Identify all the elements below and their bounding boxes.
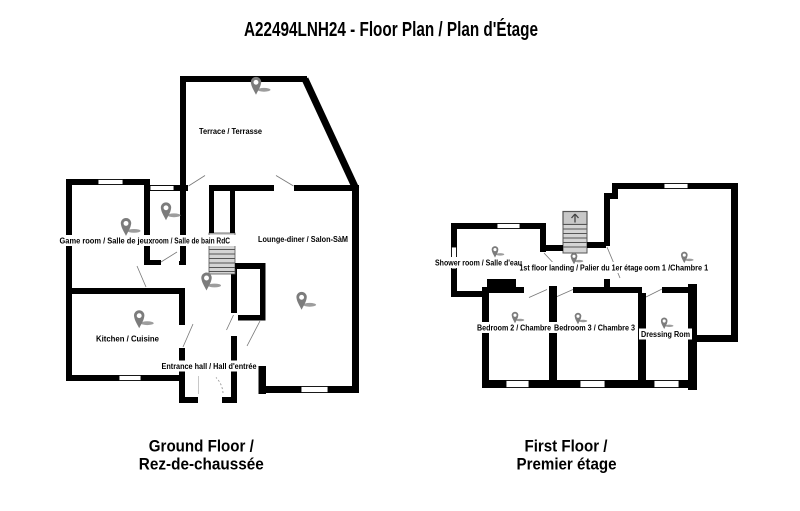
- svg-text:Ground Floor /: Ground Floor /: [149, 436, 254, 455]
- svg-text:room / Salle de bain RdC: room / Salle de bain RdC: [152, 237, 230, 246]
- svg-text:Terrace / Terrasse: Terrace / Terrasse: [199, 127, 263, 136]
- svg-text:1st floor landing / Palier du: 1st floor landing / Palier du 1er étage: [520, 264, 643, 273]
- svg-text:Lounge-diner / Salon-SàM: Lounge-diner / Salon-SàM: [258, 235, 348, 244]
- svg-text:Game room / Salle de jeux: Game room / Salle de jeux: [60, 237, 154, 246]
- svg-text:First Floor /: First Floor /: [525, 436, 608, 455]
- svg-text:Entrance hall / Hall d'entrée: Entrance hall / Hall d'entrée: [162, 362, 257, 371]
- svg-text:Rez-de-chaussée: Rez-de-chaussée: [139, 454, 264, 473]
- svg-text:Bedroom 2 / Chambre 2: Bedroom 2 / Chambre 2: [477, 324, 557, 333]
- svg-text:Bedroom 3 / Chambre 3: Bedroom 3 / Chambre 3: [554, 324, 635, 333]
- svg-text:A22494LNH24 - Floor Plan / Pla: A22494LNH24 - Floor Plan / Plan d'Étage: [244, 18, 538, 41]
- svg-text:oom 1 /Chambre 1: oom 1 /Chambre 1: [644, 264, 709, 273]
- svg-text:Dressing Rom: Dressing Rom: [641, 330, 690, 339]
- svg-text:Kitchen / Cuisine: Kitchen / Cuisine: [96, 335, 160, 344]
- svg-text:Premier étage: Premier étage: [517, 454, 617, 473]
- svg-text:Shower room / Salle d'eau: Shower room / Salle d'eau: [435, 259, 522, 268]
